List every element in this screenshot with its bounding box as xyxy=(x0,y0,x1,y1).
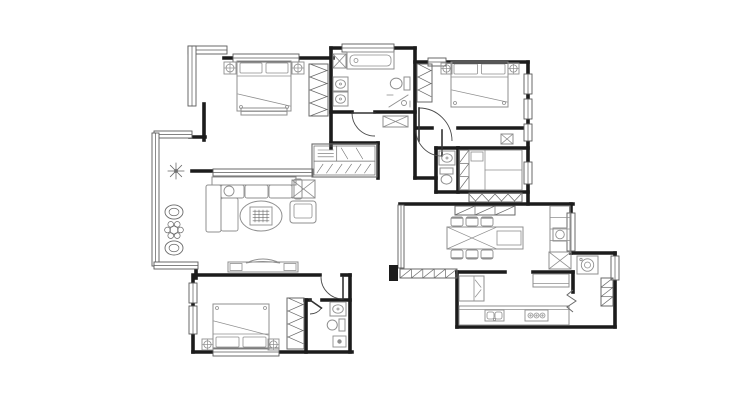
dining-appliance xyxy=(553,228,567,241)
bath-column xyxy=(333,54,346,68)
coffee-table xyxy=(240,201,282,231)
bedroom3-bed xyxy=(213,304,269,349)
plant-pot-2 xyxy=(165,241,183,255)
entry-door xyxy=(419,108,452,141)
bedroom2-closet xyxy=(417,64,432,102)
dining-top-cabinet xyxy=(455,206,515,215)
study-tatami xyxy=(469,150,522,190)
dining-table xyxy=(447,227,523,249)
bath-sink-1 xyxy=(333,77,348,91)
kitchen-counter-2 xyxy=(533,274,569,287)
chair-5 xyxy=(466,250,478,259)
master-wardrobe xyxy=(309,64,328,116)
bedroom3-wardrobe xyxy=(287,298,304,349)
bedroom2-nightstand-right xyxy=(508,63,519,74)
bedroom3-door xyxy=(321,277,343,299)
plant-flower xyxy=(165,222,184,239)
stove xyxy=(525,310,548,321)
utility-shelf xyxy=(601,278,613,306)
bedroom3-nightstand-left xyxy=(202,339,213,350)
corner-cabinet xyxy=(549,252,571,269)
bath-toilet xyxy=(390,77,410,90)
bath-shower xyxy=(387,95,410,107)
shoe-cabinet xyxy=(312,144,377,177)
chair-1 xyxy=(451,217,463,226)
kitchen-counter xyxy=(459,306,569,325)
bathtub xyxy=(347,52,394,69)
hall-wall-cabinet xyxy=(501,134,513,144)
study-shelf xyxy=(459,150,469,190)
floor-plan-canvas xyxy=(0,0,740,400)
bath2-toilet xyxy=(440,168,453,184)
bedroom2-bed xyxy=(451,62,508,107)
chair-2 xyxy=(466,217,478,226)
bathroom-door xyxy=(352,113,375,136)
bath-sink-2 xyxy=(333,92,348,106)
tv-console xyxy=(228,259,298,272)
master-nightstand-left xyxy=(224,62,236,74)
floor-plan-page xyxy=(0,0,740,400)
master-bed-bench xyxy=(241,108,287,115)
chair-3 xyxy=(481,217,493,226)
armchair xyxy=(290,201,316,223)
kitchen-sink xyxy=(485,310,504,321)
bath3-sink xyxy=(330,302,346,316)
railing-pillar xyxy=(389,265,398,281)
entry-bench xyxy=(383,116,408,127)
study-low-cabinet xyxy=(469,193,522,202)
bath3-door xyxy=(310,300,321,314)
plant-pot-1 xyxy=(165,205,183,219)
master-nightstand-right xyxy=(292,62,304,74)
side-table xyxy=(292,180,315,198)
kitchen-railing xyxy=(400,269,457,278)
washer xyxy=(577,256,598,274)
bath3-toilet xyxy=(327,319,345,331)
fridge xyxy=(459,276,484,301)
bath3-drain xyxy=(333,336,346,347)
master-bed xyxy=(237,61,291,111)
bedroom2-door xyxy=(416,130,442,156)
chair-6 xyxy=(481,250,493,259)
chair-4 xyxy=(451,250,463,259)
plant-star xyxy=(168,163,184,179)
sofa xyxy=(206,177,302,232)
